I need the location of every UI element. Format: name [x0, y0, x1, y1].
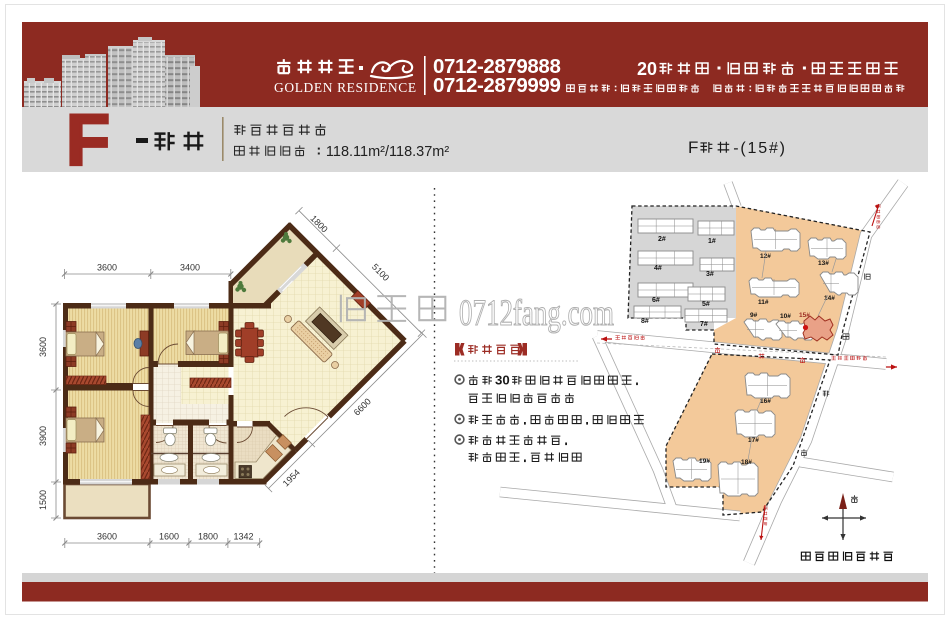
- svg-text:9#: 9#: [750, 312, 758, 319]
- svg-text:13#: 13#: [818, 260, 829, 267]
- svg-text:20: 20: [637, 59, 657, 79]
- svg-text:14#: 14#: [824, 295, 835, 302]
- svg-text:3600: 3600: [38, 337, 48, 357]
- svg-text:1800: 1800: [198, 532, 218, 542]
- svg-text:7#: 7#: [700, 321, 708, 328]
- svg-text:GOLDEN RESIDENCE: GOLDEN RESIDENCE: [274, 80, 417, 95]
- svg-text:118.11m²/118.37m²: 118.11m²/118.37m²: [326, 144, 449, 160]
- svg-text:F: F: [688, 138, 698, 157]
- svg-text:30: 30: [495, 373, 510, 388]
- svg-text:1500: 1500: [38, 490, 48, 510]
- svg-text:0712-2879999: 0712-2879999: [433, 74, 560, 97]
- svg-text:1600: 1600: [159, 532, 179, 542]
- svg-text:6#: 6#: [652, 297, 660, 304]
- svg-text:19#: 19#: [699, 458, 710, 465]
- svg-text:1342: 1342: [233, 532, 253, 542]
- svg-text:0712fang.com: 0712fang.com: [459, 293, 614, 334]
- svg-text:3900: 3900: [38, 426, 48, 446]
- svg-text:3400: 3400: [180, 263, 200, 273]
- svg-text:-(15#): -(15#): [733, 140, 786, 157]
- svg-text:3#: 3#: [706, 271, 714, 278]
- svg-text:2#: 2#: [658, 236, 666, 243]
- svg-text:18#: 18#: [741, 459, 752, 466]
- svg-text:5#: 5#: [702, 301, 710, 308]
- svg-text:15#: 15#: [799, 312, 810, 319]
- svg-text:17#: 17#: [748, 437, 759, 444]
- svg-text:11#: 11#: [758, 299, 769, 306]
- svg-text:3600: 3600: [97, 532, 117, 542]
- svg-text:3600: 3600: [97, 263, 117, 273]
- svg-text:4#: 4#: [654, 265, 662, 272]
- svg-text:1#: 1#: [708, 238, 716, 245]
- svg-text:8#: 8#: [641, 318, 649, 325]
- svg-text:10#: 10#: [780, 313, 791, 320]
- svg-text:F: F: [66, 101, 110, 181]
